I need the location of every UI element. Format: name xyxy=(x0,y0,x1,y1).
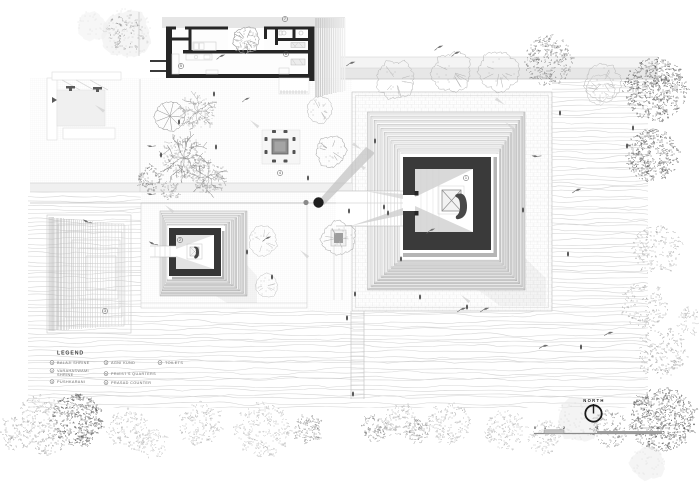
svg-text:AGNI KUND: AGNI KUND xyxy=(111,361,135,365)
svg-text:0: 0 xyxy=(534,426,536,430)
svg-text:SHRINE: SHRINE xyxy=(57,373,74,377)
svg-text:LEGEND: LEGEND xyxy=(57,351,84,357)
svg-text:4: 4 xyxy=(279,171,281,175)
svg-text:PRASAD COUNTER: PRASAD COUNTER xyxy=(111,381,151,385)
svg-text:1: 1 xyxy=(544,426,546,430)
svg-text:2: 2 xyxy=(179,238,181,242)
svg-text:NORTH: NORTH xyxy=(583,398,604,403)
svg-text:4: 4 xyxy=(596,426,598,430)
svg-text:6: 6 xyxy=(285,52,287,56)
svg-text:PRIEST'S QUARTERS: PRIEST'S QUARTERS xyxy=(111,372,156,376)
svg-text:PUSHKARANI: PUSHKARANI xyxy=(57,380,85,384)
svg-text:1: 1 xyxy=(465,176,467,180)
svg-text:TOILETS: TOILETS xyxy=(165,361,183,365)
svg-text:7: 7 xyxy=(284,17,286,21)
svg-text:5: 5 xyxy=(180,64,182,68)
svg-text:2: 2 xyxy=(563,426,565,430)
svg-text:3: 3 xyxy=(104,309,106,313)
svg-text:BALAJI SHRINE: BALAJI SHRINE xyxy=(57,361,90,365)
svg-text:16: 16 xyxy=(656,426,660,430)
